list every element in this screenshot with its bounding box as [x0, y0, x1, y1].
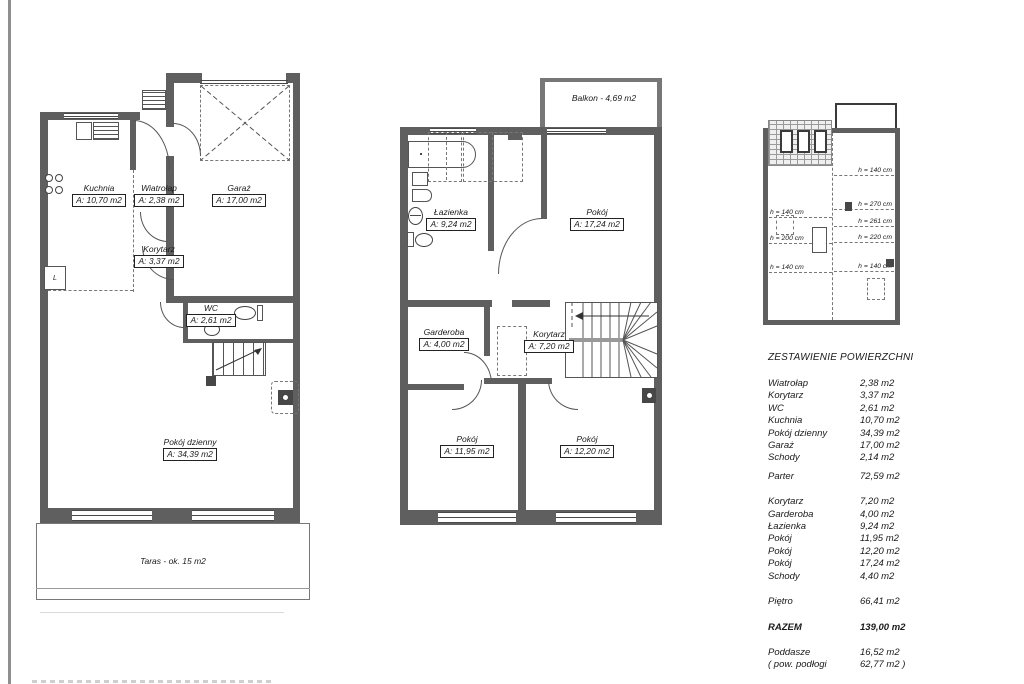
hatch-box — [812, 227, 827, 253]
room-name: Pokój — [558, 207, 636, 218]
closet-outline — [463, 132, 523, 182]
wall — [172, 296, 300, 303]
wall — [484, 378, 518, 384]
garage-door-line — [200, 80, 288, 81]
wall — [166, 73, 174, 127]
fireplace-flue-icon — [282, 394, 289, 401]
row-label: Piętro — [768, 596, 860, 608]
table-row: Garderoba4,00 m2 — [768, 509, 1010, 521]
row-value: 66,41 m2 — [860, 596, 900, 608]
room-area: A: 17,00 m2 — [212, 194, 266, 207]
balkon-label: Balkon - 4,69 m2 — [552, 93, 656, 103]
window — [72, 510, 152, 521]
room-area: A: 2,61 m2 — [186, 314, 235, 327]
height-line — [834, 242, 894, 243]
room-label-garaz: Garaż A: 17,00 m2 — [203, 183, 275, 207]
row-value: 2,61 m2 — [860, 403, 894, 415]
window — [64, 113, 118, 119]
row-value: 2,14 m2 — [860, 452, 894, 464]
toilet-tank-icon — [407, 232, 414, 247]
row-label: Pokój — [768, 533, 860, 545]
room-label-pokoj-1195: Pokój A: 11,95 m2 — [428, 434, 506, 458]
room-area: A: 4,00 m2 — [419, 338, 468, 351]
height-label: h = 140 cm — [770, 264, 804, 271]
height-label: h = 140 cm — [840, 263, 892, 270]
row-label: RAZEM — [768, 622, 860, 634]
wall — [484, 300, 490, 356]
balcony-wall — [540, 78, 545, 128]
ridge-line — [832, 133, 833, 320]
row-value: 9,24 m2 — [860, 521, 894, 533]
row-label: Pokój — [768, 546, 860, 558]
row-value: 34,39 m2 — [860, 428, 900, 440]
row-value: 17,00 m2 — [860, 440, 900, 452]
room-label-korytarz: Korytarz A: 7,20 m2 — [518, 329, 580, 353]
height-line — [834, 209, 894, 210]
room-area: A: 10,70 m2 — [72, 194, 126, 207]
row-value: 10,70 m2 — [860, 415, 900, 427]
balcony-door — [546, 128, 606, 134]
room-area: A: 34,39 m2 — [163, 448, 217, 461]
height-label: h = 270 cm — [854, 201, 892, 208]
row-label: Pokój dzienny — [768, 428, 860, 440]
door-arc — [134, 120, 170, 170]
table-row-total: RAZEM139,00 m2 — [768, 622, 1010, 634]
height-line — [769, 272, 832, 273]
table-row: Garaż17,00 m2 — [768, 440, 1010, 452]
page-edge-line — [8, 0, 11, 684]
garage-clearance-box — [200, 85, 290, 161]
table-row: Pokój dzienny34,39 m2 — [768, 428, 1010, 440]
table-row-poddasze: Poddasze16,52 m2 — [768, 647, 1010, 659]
row-value: 4,40 m2 — [860, 571, 894, 583]
room-label-pokoj-dzienny: Pokój dzienny A: 34,39 m2 — [140, 437, 240, 461]
row-label: Schody — [768, 571, 860, 583]
table-row: Pokój12,20 m2 — [768, 546, 1010, 558]
flue-box — [797, 130, 810, 153]
room-name: Korytarz — [128, 244, 190, 255]
door-arc — [452, 380, 482, 410]
counter-icon — [93, 122, 119, 140]
cutoff-text-strip — [32, 680, 272, 683]
dashed-line — [492, 132, 493, 180]
table-row: Pokój17,24 m2 — [768, 558, 1010, 570]
fireplace-flue-icon — [646, 392, 653, 399]
room-area: A: 2,38 m2 — [134, 194, 183, 207]
flue-icon — [845, 202, 852, 211]
stairs-arrow — [210, 340, 268, 376]
room-area: A: 11,95 m2 — [440, 445, 493, 458]
row-value: 17,24 m2 — [860, 558, 900, 570]
room-name: Pokój dzienny — [140, 437, 240, 448]
row-value: 11,95 m2 — [860, 533, 899, 545]
door-arc — [548, 380, 578, 410]
room-label-garderoba: Garderoba A: 4,00 m2 — [408, 327, 480, 351]
post-icon — [886, 259, 894, 267]
room-area: A: 9,24 m2 — [426, 218, 475, 231]
room-area: A: 3,37 m2 — [134, 255, 183, 268]
room-label-wc: WC A: 2,61 m2 — [182, 303, 240, 327]
row-value: 2,38 m2 — [860, 378, 894, 390]
window — [192, 510, 274, 521]
dormer-outline — [835, 103, 897, 130]
dashed-line — [446, 132, 447, 180]
area-summary-table: ZESTAWIENIE POWIERZCHNI Wiatrołap2,38 m2… — [768, 352, 1010, 672]
row-label: Korytarz — [768, 390, 860, 402]
door-arc — [173, 123, 201, 156]
room-name: WC — [182, 303, 240, 314]
height-label: h = 261 cm — [840, 218, 892, 225]
table-row: Schody2,14 m2 — [768, 452, 1010, 464]
table-row: Wiatrołap2,38 m2 — [768, 378, 1010, 390]
appliance-box: L — [44, 266, 66, 290]
row-value: 3,37 m2 — [860, 390, 894, 402]
garage-x-mark — [201, 86, 289, 160]
height-label: h = 140 cm — [840, 167, 892, 174]
row-label: Garderoba — [768, 509, 860, 521]
closet-outline — [428, 132, 462, 182]
wall — [400, 127, 408, 525]
door-arc — [140, 212, 168, 242]
toilet-icon — [415, 233, 433, 247]
row-label: Korytarz — [768, 496, 860, 508]
room-label-wiatrolap: Wiatrołap A: 2,38 m2 — [128, 183, 190, 207]
taras-label: Taras - ok. 15 m2 — [113, 556, 233, 566]
wall — [895, 128, 900, 325]
table-row-parter-subtotal: Parter72,59 m2 — [768, 471, 1010, 483]
wall — [763, 320, 900, 325]
row-value: 62,77 m2 ) — [860, 659, 905, 671]
row-label: WC — [768, 403, 860, 415]
room-name: Korytarz — [518, 329, 580, 340]
table-row: Łazienka9,24 m2 — [768, 521, 1010, 533]
dashed-line — [48, 290, 133, 291]
table-row: Kuchnia10,70 m2 — [768, 415, 1010, 427]
room-name: Garaż — [203, 183, 275, 194]
table-row-pietro-subtotal: Piętro66,41 m2 — [768, 596, 1010, 608]
entry-steps — [142, 90, 166, 110]
row-label: Parter — [768, 471, 860, 483]
row-value: 16,52 m2 — [860, 647, 900, 659]
row-label: Garaż — [768, 440, 860, 452]
row-value: 12,20 m2 — [860, 546, 900, 558]
row-label: Poddasze — [768, 647, 860, 659]
wall — [512, 300, 550, 307]
balcony-wall — [657, 78, 662, 128]
opening-outline — [776, 215, 794, 235]
row-label: Schody — [768, 452, 860, 464]
row-label: Łazienka — [768, 521, 860, 533]
room-area: A: 7,20 m2 — [524, 340, 573, 353]
balcony-wall — [540, 78, 662, 82]
wall — [400, 300, 492, 307]
row-value: 7,20 m2 — [860, 496, 894, 508]
fridge-icon — [76, 122, 92, 140]
wall — [518, 378, 526, 512]
room-label-pokoj-17: Pokój A: 17,24 m2 — [558, 207, 636, 231]
post-icon — [206, 376, 216, 386]
row-value: 139,00 m2 — [860, 622, 905, 634]
stove-burner-icon — [45, 174, 53, 182]
flue-box — [814, 130, 827, 153]
stove-burner-icon — [45, 186, 53, 194]
table-row: Schody4,40 m2 — [768, 571, 1010, 583]
wall — [541, 127, 547, 219]
door-arc — [160, 302, 184, 328]
flue-box — [780, 130, 793, 153]
window — [438, 512, 516, 523]
opening-outline — [867, 278, 885, 300]
garage-door-line — [200, 83, 288, 84]
room-name: Pokój — [548, 434, 626, 445]
row-label: Kuchnia — [768, 415, 860, 427]
window — [556, 512, 636, 523]
height-line — [834, 226, 894, 227]
row-label: Wiatrołap — [768, 378, 860, 390]
table-row: Korytarz7,20 m2 — [768, 496, 1010, 508]
toilet-tank-icon — [257, 305, 263, 321]
row-label: ( pow. podłogi — [768, 659, 860, 671]
row-value: 4,00 m2 — [860, 509, 894, 521]
faint-line — [40, 612, 284, 613]
room-name: Łazienka — [415, 207, 487, 218]
cabinet-icon — [412, 172, 428, 186]
washer-icon — [412, 189, 432, 202]
height-line — [834, 175, 894, 176]
room-label-pokoj-1220: Pokój A: 12,20 m2 — [548, 434, 626, 458]
height-label: h = 220 cm — [840, 234, 892, 241]
room-name: Garderoba — [408, 327, 480, 338]
table-row: WC2,61 m2 — [768, 403, 1010, 415]
door-arc — [498, 218, 542, 274]
bathtub-drain-icon — [420, 153, 422, 155]
room-area: A: 17,24 m2 — [570, 218, 624, 231]
wall — [174, 73, 202, 83]
floor-plan-sheet: L Kuchnia A: 10,70 m2 Wiatrołap A: 2,38 … — [0, 0, 1024, 684]
room-name: Wiatrołap — [128, 183, 190, 194]
stove-burner-icon — [55, 174, 63, 182]
appliance-label: L — [53, 275, 57, 282]
height-line — [834, 271, 894, 272]
row-value: 72,59 m2 — [860, 471, 900, 483]
room-area: A: 12,20 m2 — [560, 445, 614, 458]
room-label-korytarz: Korytarz A: 3,37 m2 — [128, 244, 190, 268]
table-title: ZESTAWIENIE POWIERZCHNI — [768, 352, 1010, 363]
room-label-lazienka: Łazienka A: 9,24 m2 — [415, 207, 487, 231]
table-row: Korytarz3,37 m2 — [768, 390, 1010, 402]
table-row: Pokój11,95 m2 — [768, 533, 1010, 545]
height-label: h = 200 cm — [770, 235, 804, 242]
table-row-floor-area: ( pow. podłogi62,77 m2 ) — [768, 659, 1010, 671]
room-name: Pokój — [428, 434, 506, 445]
terrace-inner-line — [36, 588, 310, 589]
row-label: Pokój — [768, 558, 860, 570]
